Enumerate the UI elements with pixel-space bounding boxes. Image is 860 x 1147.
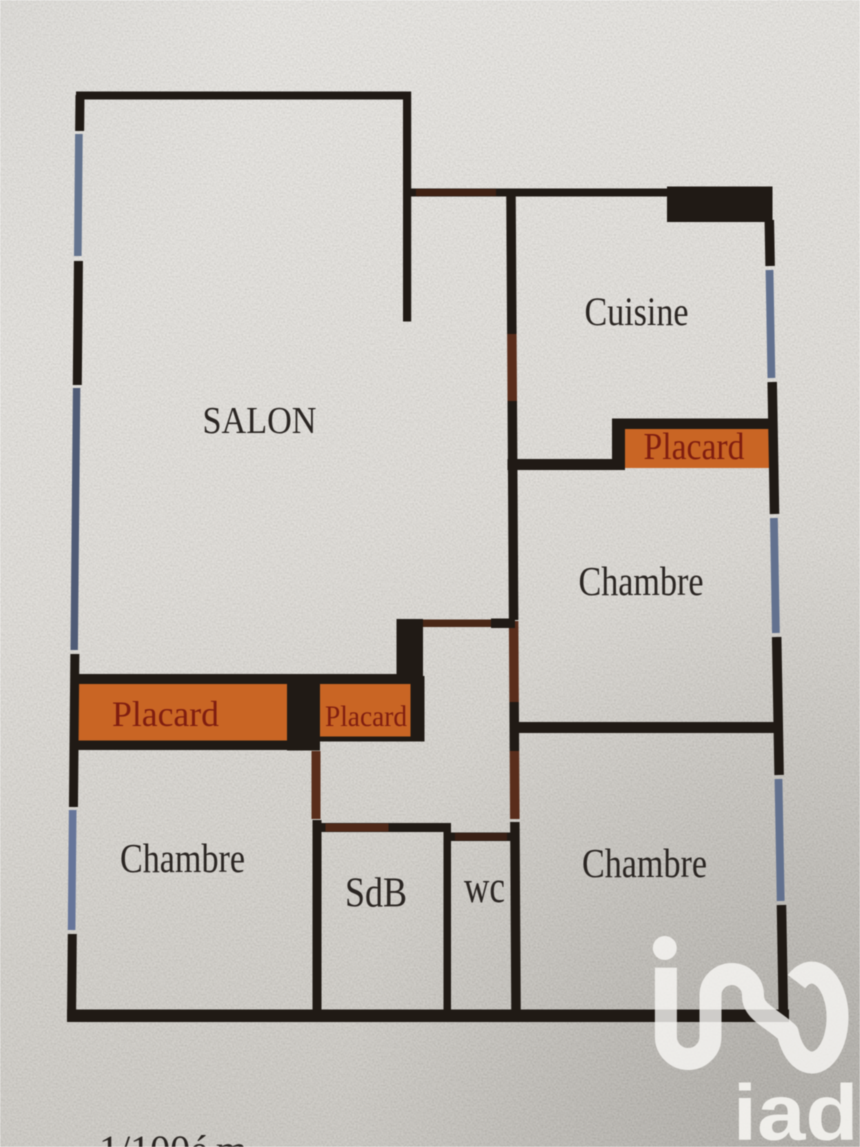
svg-text:iad: iad — [733, 1068, 859, 1147]
svg-text:Cuisine: Cuisine — [585, 289, 689, 334]
svg-text:wc: wc — [464, 861, 505, 912]
svg-text:Chambre: Chambre — [582, 840, 707, 886]
svg-text:1/100ém: 1/100ém — [99, 1127, 247, 1147]
svg-text:SALON: SALON — [203, 400, 317, 442]
svg-text:Placard: Placard — [325, 700, 407, 733]
svg-text:Placard: Placard — [644, 426, 745, 468]
svg-text:SdB: SdB — [345, 871, 407, 917]
svg-text:Chambre: Chambre — [120, 835, 245, 881]
svg-text:Placard: Placard — [112, 694, 219, 734]
svg-text:Chambre: Chambre — [579, 558, 704, 604]
